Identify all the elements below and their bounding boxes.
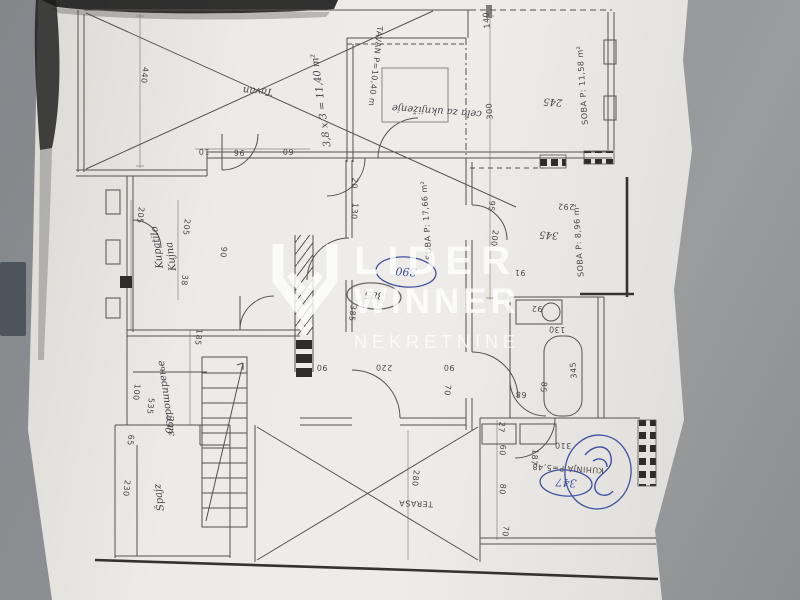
dim-90b: 90	[316, 363, 327, 372]
floor-plan-drawing: 440Tavan3,8 x 3 = 11,40 m²TAVAN P=10,40 …	[0, 0, 800, 600]
dim-95: 95	[486, 200, 496, 212]
circled-390-blue-pen-text: 390	[395, 264, 417, 278]
dimension-lines	[131, 14, 497, 560]
dim-440: 440	[139, 66, 150, 84]
dim-140: 140	[481, 11, 491, 28]
dim-185: 185	[193, 328, 204, 346]
dim-91: 91	[514, 268, 525, 277]
dim-187: 187	[529, 448, 540, 466]
hand-uknjizenje: cela za uknjiženje	[391, 102, 482, 119]
dim-65: 65	[125, 434, 135, 446]
hand-390: 390	[162, 414, 175, 435]
hand-tavan: Tavan	[243, 84, 274, 97]
dim-385: 385	[347, 304, 358, 322]
room-kuhinja: KUHINJA P=5,48	[532, 462, 604, 475]
dim-310: 310	[554, 441, 571, 451]
dim-38: 38	[179, 274, 189, 286]
dim-80: 80	[497, 483, 507, 495]
dim-70a: 70	[442, 384, 452, 396]
dim-92: 92	[531, 304, 542, 313]
dim-200: 200	[489, 229, 500, 247]
circled-385-pencil-text: 385	[364, 288, 384, 300]
dim-230: 230	[121, 479, 132, 497]
dim-130a: 130	[349, 202, 360, 220]
dim-20: 20	[349, 177, 359, 189]
hand-spajz: Špajz	[151, 482, 167, 512]
photo-of-floor-plan: { "watermark":{"line1":"LIDER","line2":"…	[0, 0, 800, 600]
dim-345b: 345	[568, 361, 578, 378]
dim-220: 220	[375, 363, 392, 373]
hand-area-note: 3,8 x 3 = 11,40 m²	[310, 53, 334, 148]
dim-280: 280	[410, 469, 421, 487]
dim-27: 27	[496, 421, 506, 433]
room-soba-1766: SOBA P: 17,66 m²	[419, 180, 434, 260]
dim-85: 85	[538, 381, 548, 393]
dim-90a: 90	[218, 246, 228, 258]
dim-90c: 90	[443, 363, 454, 372]
hand-245: 245	[543, 95, 564, 107]
dim-205b: 205	[181, 218, 192, 236]
dim-100: 100	[131, 383, 142, 401]
dim-60a: 60	[282, 147, 293, 156]
scan-smudges	[35, 0, 492, 360]
hand-345a: 345	[539, 228, 559, 240]
plan-text-labels: 440Tavan3,8 x 3 = 11,40 m²TAVAN P=10,40 …	[121, 11, 604, 537]
dim-10: 10	[198, 147, 209, 156]
dim-70b: 70	[500, 525, 510, 537]
room-soba-896: SOBA P: 8,96 m²	[571, 203, 585, 277]
dim-205a: 205	[135, 206, 146, 224]
hand-kujna: Kujna	[164, 241, 179, 272]
room-soba-1158: SOBA P: 11,58 m²	[575, 45, 590, 125]
dim-535: 535	[145, 397, 156, 415]
dim-300: 300	[484, 102, 494, 119]
dim-68: 68	[515, 390, 526, 399]
dim-130b: 130	[548, 325, 565, 335]
hand-kupatilo: Kupatilo	[149, 226, 166, 271]
dim-60b: 60	[497, 444, 507, 456]
dashed-walls	[347, 10, 612, 168]
dim-96: 96	[233, 148, 244, 157]
room-terasa: TERASA	[399, 498, 435, 508]
